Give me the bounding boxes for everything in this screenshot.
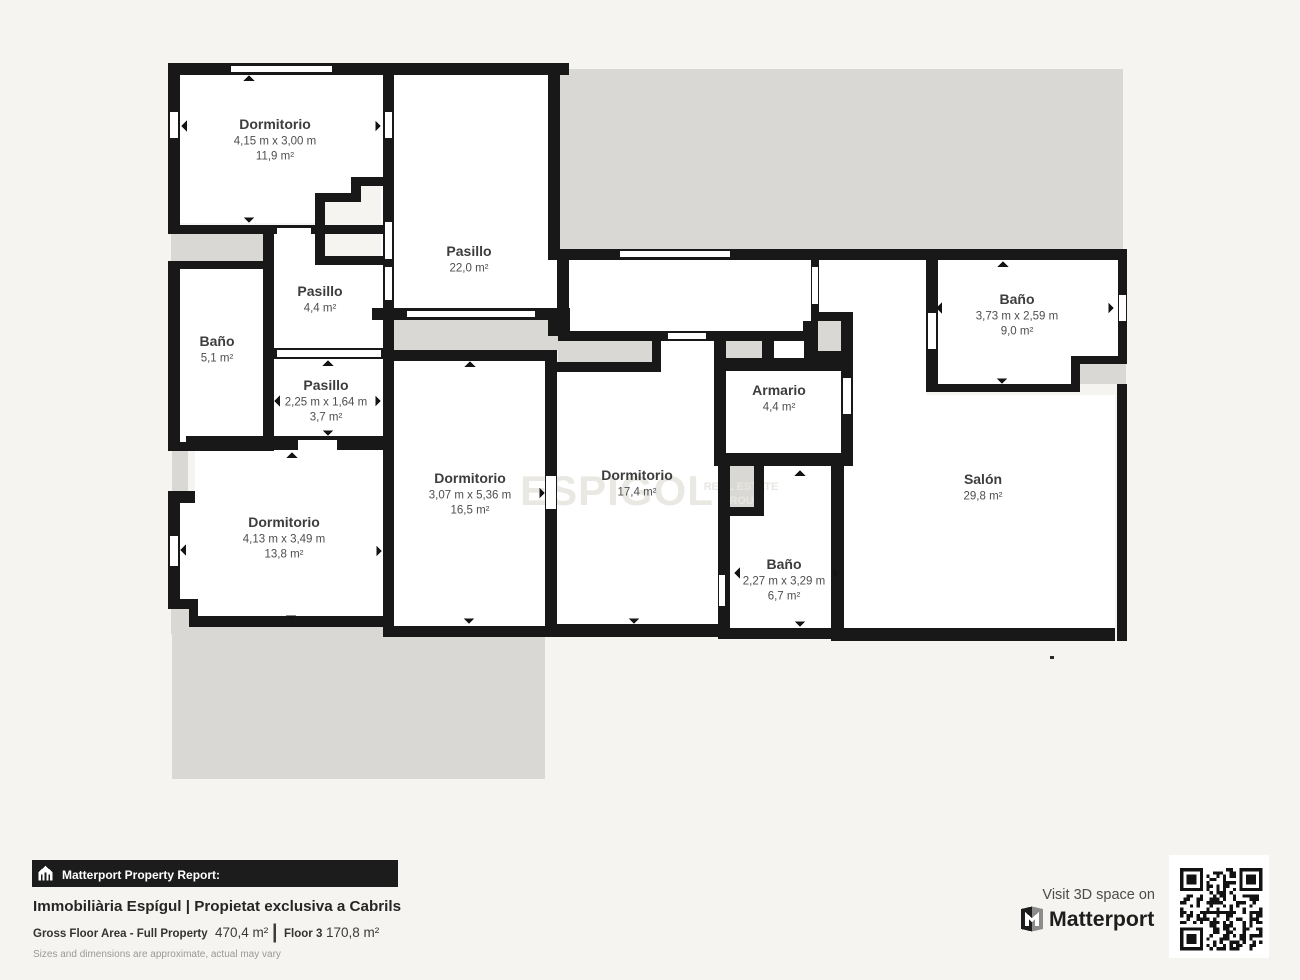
svg-text:Sizes and dimensions are appro: Sizes and dimensions are approximate, ac… xyxy=(33,949,281,960)
svg-text:4,4 m²: 4,4 m² xyxy=(763,402,796,414)
svg-text:Dormitorio: Dormitorio xyxy=(248,514,320,530)
svg-text:3,07 m x 5,36 m: 3,07 m x 5,36 m xyxy=(429,490,511,502)
svg-text:2,27 m x 3,29 m: 2,27 m x 3,29 m xyxy=(743,576,825,588)
svg-text:2,25 m x 1,64 m: 2,25 m x 1,64 m xyxy=(285,397,367,409)
svg-text:Matterport: Matterport xyxy=(1049,907,1154,931)
svg-text:Matterport Property Report:: Matterport Property Report: xyxy=(62,868,220,882)
svg-text:17,4 m²: 17,4 m² xyxy=(618,487,657,499)
svg-text:13,8 m²: 13,8 m² xyxy=(265,549,304,561)
svg-text:Dormitorio: Dormitorio xyxy=(239,116,311,132)
svg-text:Baño: Baño xyxy=(767,556,802,572)
svg-text:16,5 m²: 16,5 m² xyxy=(451,505,490,517)
svg-text:4,15 m x 3,00 m: 4,15 m x 3,00 m xyxy=(234,136,316,148)
svg-text:Visit 3D space on: Visit 3D space on xyxy=(1042,887,1155,903)
svg-text:Pasillo: Pasillo xyxy=(297,283,342,299)
svg-text:Pasillo: Pasillo xyxy=(303,377,348,393)
svg-text:Salón: Salón xyxy=(964,471,1002,487)
svg-text:5,1 m²: 5,1 m² xyxy=(201,353,234,365)
svg-text:Dormitorio: Dormitorio xyxy=(434,470,506,486)
svg-text:Baño: Baño xyxy=(1000,291,1035,307)
svg-text:6,7 m²: 6,7 m² xyxy=(768,591,801,603)
svg-text:4,13 m x 3,49 m: 4,13 m x 3,49 m xyxy=(243,534,325,546)
svg-text:22,0 m²: 22,0 m² xyxy=(450,263,489,275)
svg-text:470,4 m²: 470,4 m² xyxy=(215,925,269,940)
svg-text:3,73 m x 2,59 m: 3,73 m x 2,59 m xyxy=(976,311,1058,323)
svg-text:Dormitorio: Dormitorio xyxy=(601,467,673,483)
svg-text:Armario: Armario xyxy=(752,382,806,398)
svg-text:Pasillo: Pasillo xyxy=(446,243,491,259)
svg-text:170,8 m²: 170,8 m² xyxy=(326,925,380,940)
svg-text:4,4 m²: 4,4 m² xyxy=(304,303,337,315)
svg-text:29,8 m²: 29,8 m² xyxy=(964,491,1003,503)
svg-text:11,9 m²: 11,9 m² xyxy=(256,151,294,163)
svg-text:Gross Floor Area - Full Proper: Gross Floor Area - Full Property xyxy=(33,928,208,940)
svg-text:Floor 3: Floor 3 xyxy=(284,928,322,940)
svg-text:REAL ESTATE: REAL ESTATE xyxy=(704,481,779,493)
svg-text:Immobiliària Espígul | Propiet: Immobiliària Espígul | Propietat exclusi… xyxy=(33,898,401,915)
svg-text:9,0 m²: 9,0 m² xyxy=(1001,326,1034,338)
svg-text:Baño: Baño xyxy=(200,333,235,349)
svg-text:3,7 m²: 3,7 m² xyxy=(310,412,343,424)
